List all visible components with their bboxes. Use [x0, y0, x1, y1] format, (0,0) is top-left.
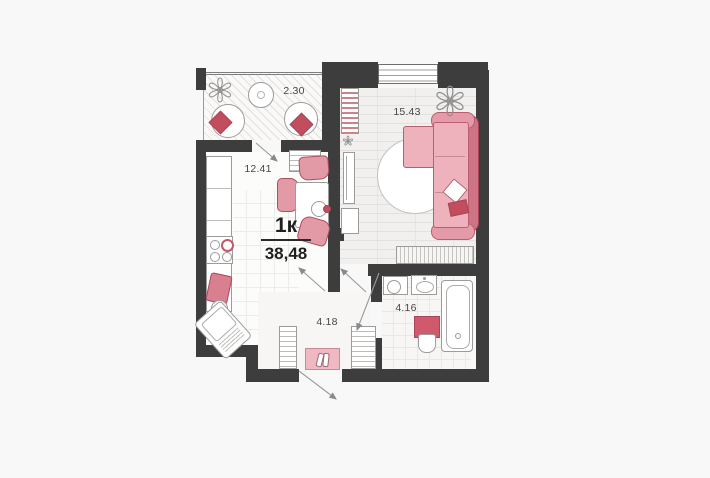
drain: [455, 333, 461, 339]
wall: [342, 369, 488, 382]
shoes-icon: [322, 353, 329, 368]
cup: [323, 205, 331, 213]
entrance-door-arrow: [299, 371, 336, 399]
tv-stand: [341, 208, 359, 234]
title-divider: [261, 239, 311, 241]
washing-machine: [383, 276, 408, 295]
shoe-cabinet: [279, 326, 297, 369]
apartment-type-label: 1к: [257, 215, 315, 237]
washer-door: [387, 280, 401, 294]
wall: [371, 276, 382, 302]
coffee-table-center: [257, 91, 265, 99]
radiator-bench: [396, 246, 474, 264]
toilet-bowl: [418, 334, 436, 353]
burner: [210, 240, 220, 250]
wall: [328, 140, 340, 292]
wall: [256, 369, 299, 382]
stove: [206, 236, 233, 264]
room-area-label-kitchen: 12.41: [244, 163, 271, 175]
tub-inner: [446, 285, 470, 349]
burner: [221, 239, 234, 252]
tv-screen: [346, 156, 350, 200]
room-area-label-bathroom: 4.16: [395, 302, 416, 314]
doormat: [305, 348, 340, 370]
room-area-label-hallway: 4.18: [316, 316, 337, 328]
room-area-label-living: 15.43: [393, 106, 420, 118]
apartment-area-value: 38,48: [257, 244, 315, 264]
apartment-title-block: 1к 38,48: [257, 215, 315, 264]
bathroom-sink: [411, 275, 437, 295]
wall: [322, 62, 340, 152]
wardrobe: [351, 326, 376, 369]
apartment-floorplan: 2.30 15.43 12.41 4.18 4.16 1к 38,48: [195, 60, 491, 390]
bathtub: [441, 280, 473, 352]
sink-bowl: [416, 281, 434, 293]
faucet: [423, 277, 426, 280]
counter-divider: [207, 188, 231, 189]
plant-icon: [423, 74, 477, 133]
dining-chair: [298, 155, 330, 181]
counter-divider: [207, 220, 231, 221]
burner: [222, 252, 232, 262]
bookshelf: [341, 88, 359, 134]
floorplan-canvas: 2.30 15.43 12.41 4.18 4.16 1к 38,48: [0, 0, 710, 478]
burner: [210, 252, 220, 262]
room-area-label-loggia: 2.30: [283, 85, 304, 97]
door-swing-arrow: [341, 269, 366, 292]
